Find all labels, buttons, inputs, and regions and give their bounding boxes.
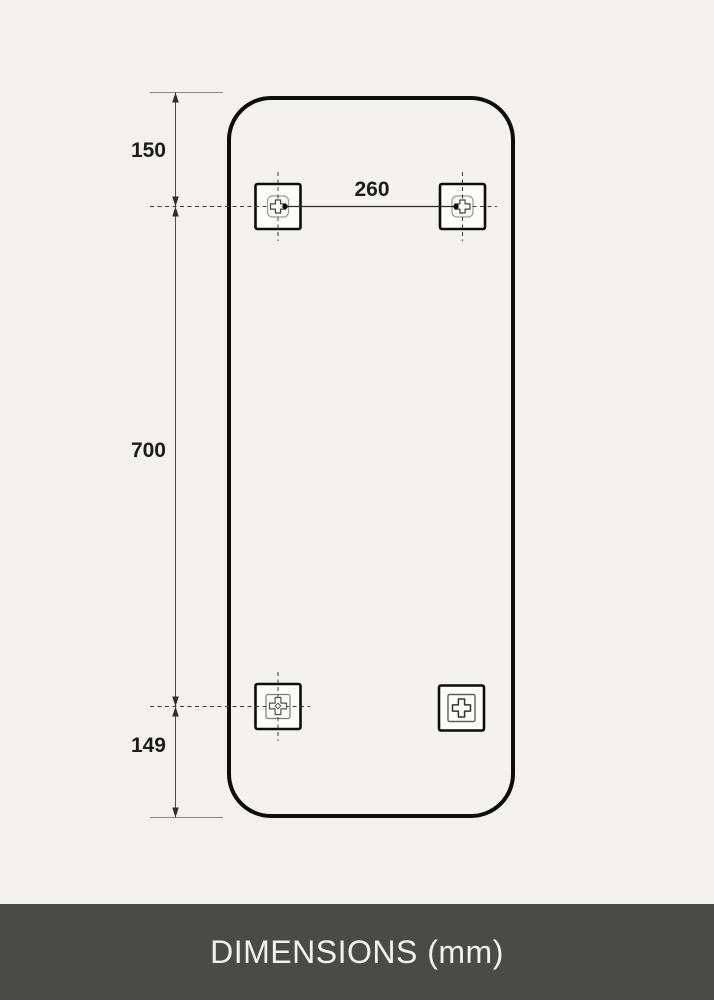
- arrow-down-icon: [172, 808, 179, 818]
- dimension-label-vertical-spacing: 700: [118, 440, 166, 462]
- arrow-up-icon: [172, 93, 179, 103]
- arrow-up-icon: [172, 707, 179, 717]
- screw-dot-icon: [453, 204, 458, 209]
- footer-title: DIMENSIONS (mm): [210, 934, 504, 971]
- dimension-diagram: [0, 0, 714, 904]
- arrow-up-icon: [172, 207, 179, 217]
- screw-dot-icon: [282, 204, 287, 209]
- dimension-label-top-offset: 150: [118, 140, 166, 162]
- page-root: 150 260 700 149 DIMENSIONS (mm): [0, 0, 714, 1000]
- arrow-down-icon: [172, 697, 179, 707]
- arrow-down-icon: [172, 197, 179, 207]
- footer-bar: DIMENSIONS (mm): [0, 904, 714, 1000]
- dimension-label-bottom-offset: 149: [118, 735, 166, 757]
- dimension-label-hole-spacing: 260: [342, 179, 402, 201]
